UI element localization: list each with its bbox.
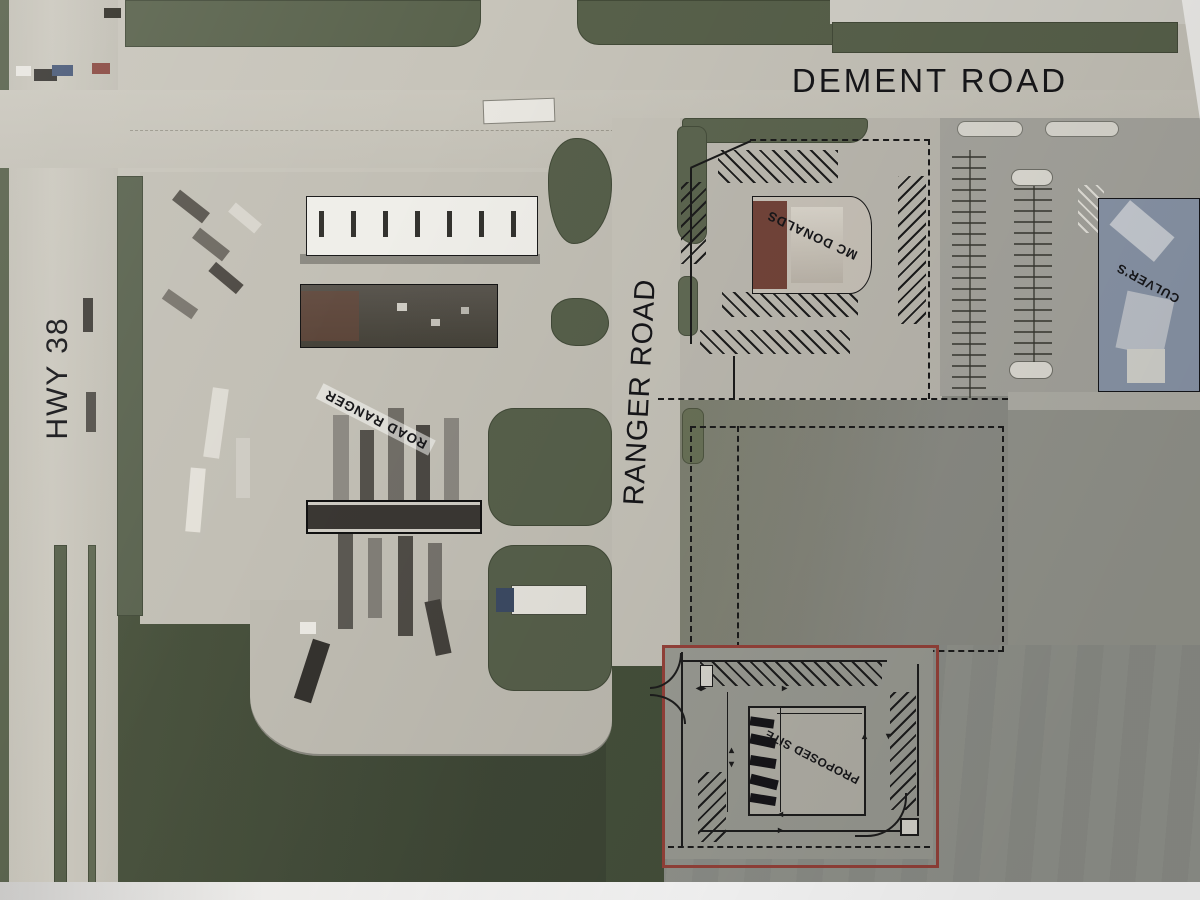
flow-arrow: ▸ — [782, 684, 787, 694]
grass-island-upper — [488, 408, 612, 526]
east-lot-south-band — [1008, 392, 1200, 410]
ground-right-column — [1008, 392, 1200, 650]
site-inner-lane-line — [727, 692, 728, 812]
hwy-38-median-strip-2 — [88, 545, 96, 884]
rooftop-unit — [397, 303, 407, 311]
car-white — [16, 66, 31, 76]
travel-center-building — [300, 284, 498, 348]
site-boundary-left — [681, 652, 683, 848]
grass-strip-top-2 — [577, 0, 833, 45]
truck-on-dement — [484, 99, 555, 123]
truck-trailer-white — [512, 586, 586, 614]
truck — [86, 392, 96, 432]
grass-strip-east-of-hwy — [117, 176, 143, 616]
truck-fuel-canopy — [306, 500, 482, 534]
property-boundary-inner-line — [737, 426, 739, 648]
flow-arrow: ▴ — [862, 732, 867, 742]
curb-island-top-1 — [958, 122, 1022, 136]
parking-row-stripes-2 — [1014, 186, 1052, 364]
pump-island — [447, 211, 452, 237]
truck-trailer — [398, 536, 413, 636]
flow-arrow: ▾ — [886, 732, 891, 742]
dement-road-label: DEMENT ROAD — [790, 62, 1070, 100]
site-boundary-right — [917, 664, 919, 816]
flow-arrow: ▸ — [778, 826, 783, 836]
pump-island — [351, 211, 356, 237]
parking-row-spine — [969, 150, 971, 398]
culvers-roof-highlight-3 — [1127, 349, 1165, 383]
truck-trailer — [236, 438, 250, 498]
truck-at-pump — [444, 418, 459, 500]
grass-small-island — [551, 298, 609, 346]
car-red — [92, 63, 110, 74]
curb-island-oval-1 — [1012, 170, 1052, 185]
car-dark — [104, 8, 121, 18]
mcdonalds-stalls-left — [681, 182, 706, 264]
truck-cab-blue — [496, 588, 514, 612]
truck-trailer — [338, 534, 353, 629]
mcdonalds-inner-line — [733, 356, 735, 400]
truck-at-pump — [360, 430, 374, 500]
curb-island-top-2 — [1046, 122, 1118, 136]
flow-arrow: ◂▸ — [696, 684, 706, 694]
mcdonalds-boundary-top-dashed — [750, 139, 930, 141]
parking-row-spine — [1033, 186, 1035, 364]
pump-island — [511, 211, 516, 237]
parking-row-stripes-1 — [952, 150, 986, 398]
mcdonalds-stalls-mid — [722, 292, 858, 317]
parcel-boundary-south-dashed — [658, 398, 1008, 400]
car-blue — [52, 65, 73, 76]
pump-island — [415, 211, 420, 237]
mcdonalds-stalls-right — [898, 176, 926, 324]
pump-island — [383, 211, 388, 237]
flow-arrow: ▴ — [729, 746, 734, 756]
truck — [83, 298, 93, 332]
proposed-building-inner-vline — [780, 706, 781, 812]
truck-trailer — [368, 538, 382, 618]
mcdonalds-grass-left-2 — [678, 276, 698, 336]
truck-at-pump — [333, 415, 349, 500]
flow-arrow: ▾ — [729, 760, 734, 770]
hwy-38-label: HWY 38 — [38, 298, 78, 458]
rooftop-unit — [461, 307, 469, 314]
flow-arrow: ◂ — [778, 810, 783, 820]
fuel-canopy — [306, 196, 538, 256]
mcdonalds-boundary-right-dashed — [928, 139, 930, 399]
culvers-roof-highlight-1 — [1110, 200, 1175, 262]
site-utility-box — [900, 818, 919, 836]
curb-island-oval-2 — [1010, 362, 1052, 378]
site-boundary-bottom-dashed — [668, 846, 930, 848]
hwy-38-median-strip — [54, 545, 67, 884]
pump-island — [479, 211, 484, 237]
aerial-site-plan-photo: MC DONALDS CULVER'S ◂▸ ▸ ▴ ▾ ▴ ▾ ◂ ▸ — [0, 0, 1200, 900]
paper-bottom-strip — [0, 882, 1200, 900]
pavement-top-right-edge — [830, 0, 1200, 24]
grass-strip-top-3 — [832, 22, 1178, 53]
site-drive-lane-line — [700, 830, 900, 832]
rooftop-unit — [431, 319, 440, 326]
mcdonalds-stalls-lower — [700, 330, 850, 354]
grass-island-lower — [488, 545, 612, 691]
site-stalls-top — [700, 662, 882, 686]
truck-cab-white — [300, 622, 316, 634]
pump-island — [319, 211, 324, 237]
grass-strip-top-1 — [125, 0, 481, 47]
mcdonalds-stalls-top — [718, 150, 838, 183]
proposed-building-inner-hline — [777, 713, 862, 714]
building-roof-section — [301, 291, 359, 341]
